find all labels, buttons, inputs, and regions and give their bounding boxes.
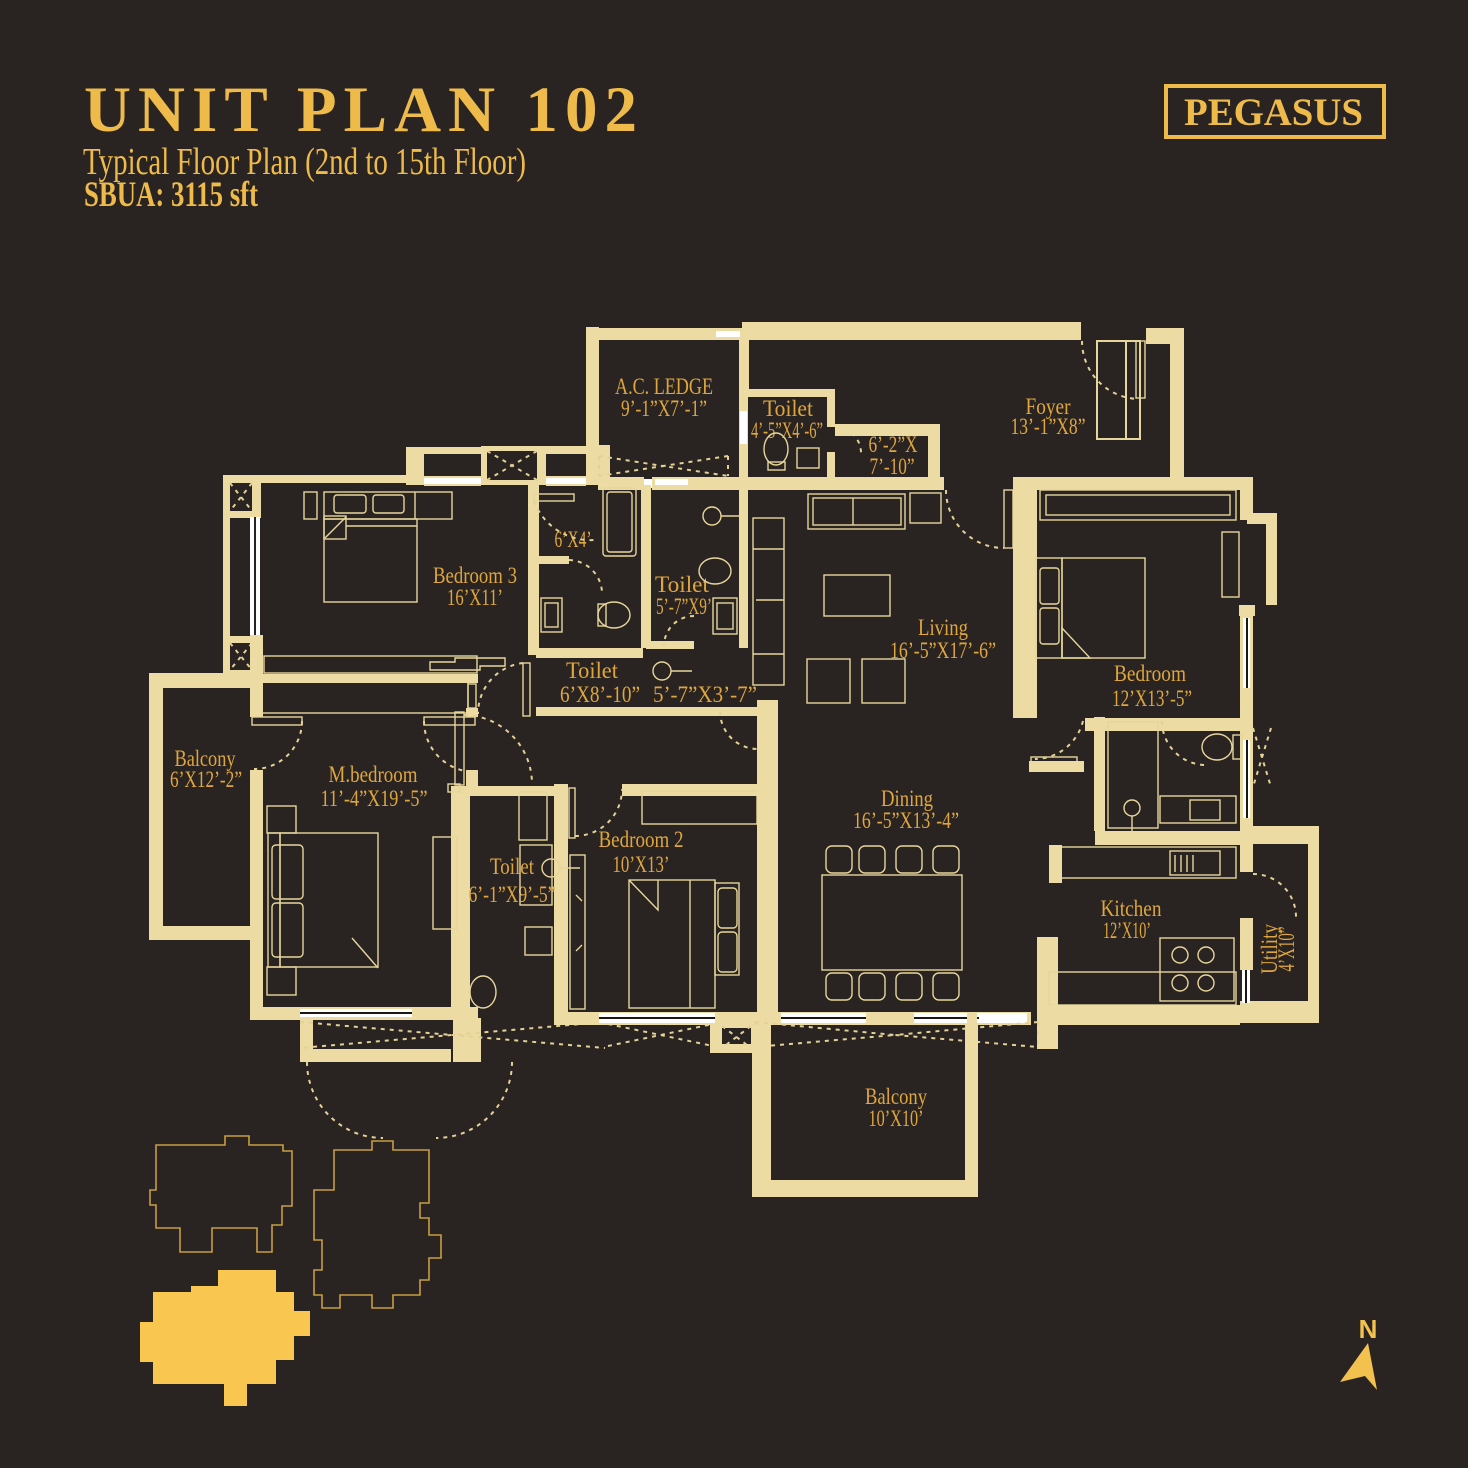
svg-text:5’-7”X9’: 5’-7”X9’ bbox=[656, 594, 712, 619]
svg-text:6’X12’-2”: 6’X12’-2” bbox=[170, 767, 242, 792]
svg-text:Toilet: Toilet bbox=[490, 854, 534, 879]
svg-text:4’-5”X4’-6”: 4’-5”X4’-6” bbox=[751, 418, 823, 443]
svg-text:10’X10’: 10’X10’ bbox=[869, 1106, 924, 1131]
svg-text:12’X13’-5”: 12’X13’-5” bbox=[1112, 686, 1192, 711]
svg-text:6’-1”X9’-5”: 6’-1”X9’-5” bbox=[469, 882, 556, 907]
svg-text:10’X13’: 10’X13’ bbox=[613, 852, 670, 877]
svg-text:13’-1”X8”: 13’-1”X8” bbox=[1011, 414, 1086, 439]
svg-text:Bedroom: Bedroom bbox=[1114, 661, 1186, 686]
svg-text:Living: Living bbox=[918, 615, 968, 640]
svg-text:9’-1”X7’-1”: 9’-1”X7’-1” bbox=[621, 396, 707, 421]
svg-text:16’-5”X13’-4”: 16’-5”X13’-4” bbox=[853, 808, 959, 833]
svg-text:UNIT PLAN 102: UNIT PLAN 102 bbox=[84, 74, 637, 146]
svg-text:12’X10’: 12’X10’ bbox=[1103, 918, 1151, 943]
svg-text:7’-10”: 7’-10” bbox=[870, 454, 915, 479]
svg-text:11’-4”X19’-5”: 11’-4”X19’-5” bbox=[321, 786, 428, 811]
svg-text:5’-7”X3’-7”: 5’-7”X3’-7” bbox=[653, 682, 757, 707]
svg-text:N: N bbox=[1359, 1314, 1378, 1344]
svg-text:M.bedroom: M.bedroom bbox=[329, 762, 418, 787]
svg-text:16’-5”X17’-6”: 16’-5”X17’-6” bbox=[890, 638, 996, 663]
svg-text:Bedroom 2: Bedroom 2 bbox=[599, 827, 684, 852]
svg-text:16’X11’: 16’X11’ bbox=[447, 585, 503, 610]
svg-text:6’X4’: 6’X4’ bbox=[555, 527, 592, 552]
svg-text:6’X8’-10”: 6’X8’-10” bbox=[560, 682, 640, 707]
svg-text:4’X10”: 4’X10” bbox=[1274, 927, 1299, 972]
svg-text:SBUA: 3115 sft: SBUA: 3115 sft bbox=[84, 174, 258, 214]
svg-text:Toilet: Toilet bbox=[566, 658, 619, 683]
svg-text:PEGASUS: PEGASUS bbox=[1184, 91, 1363, 134]
